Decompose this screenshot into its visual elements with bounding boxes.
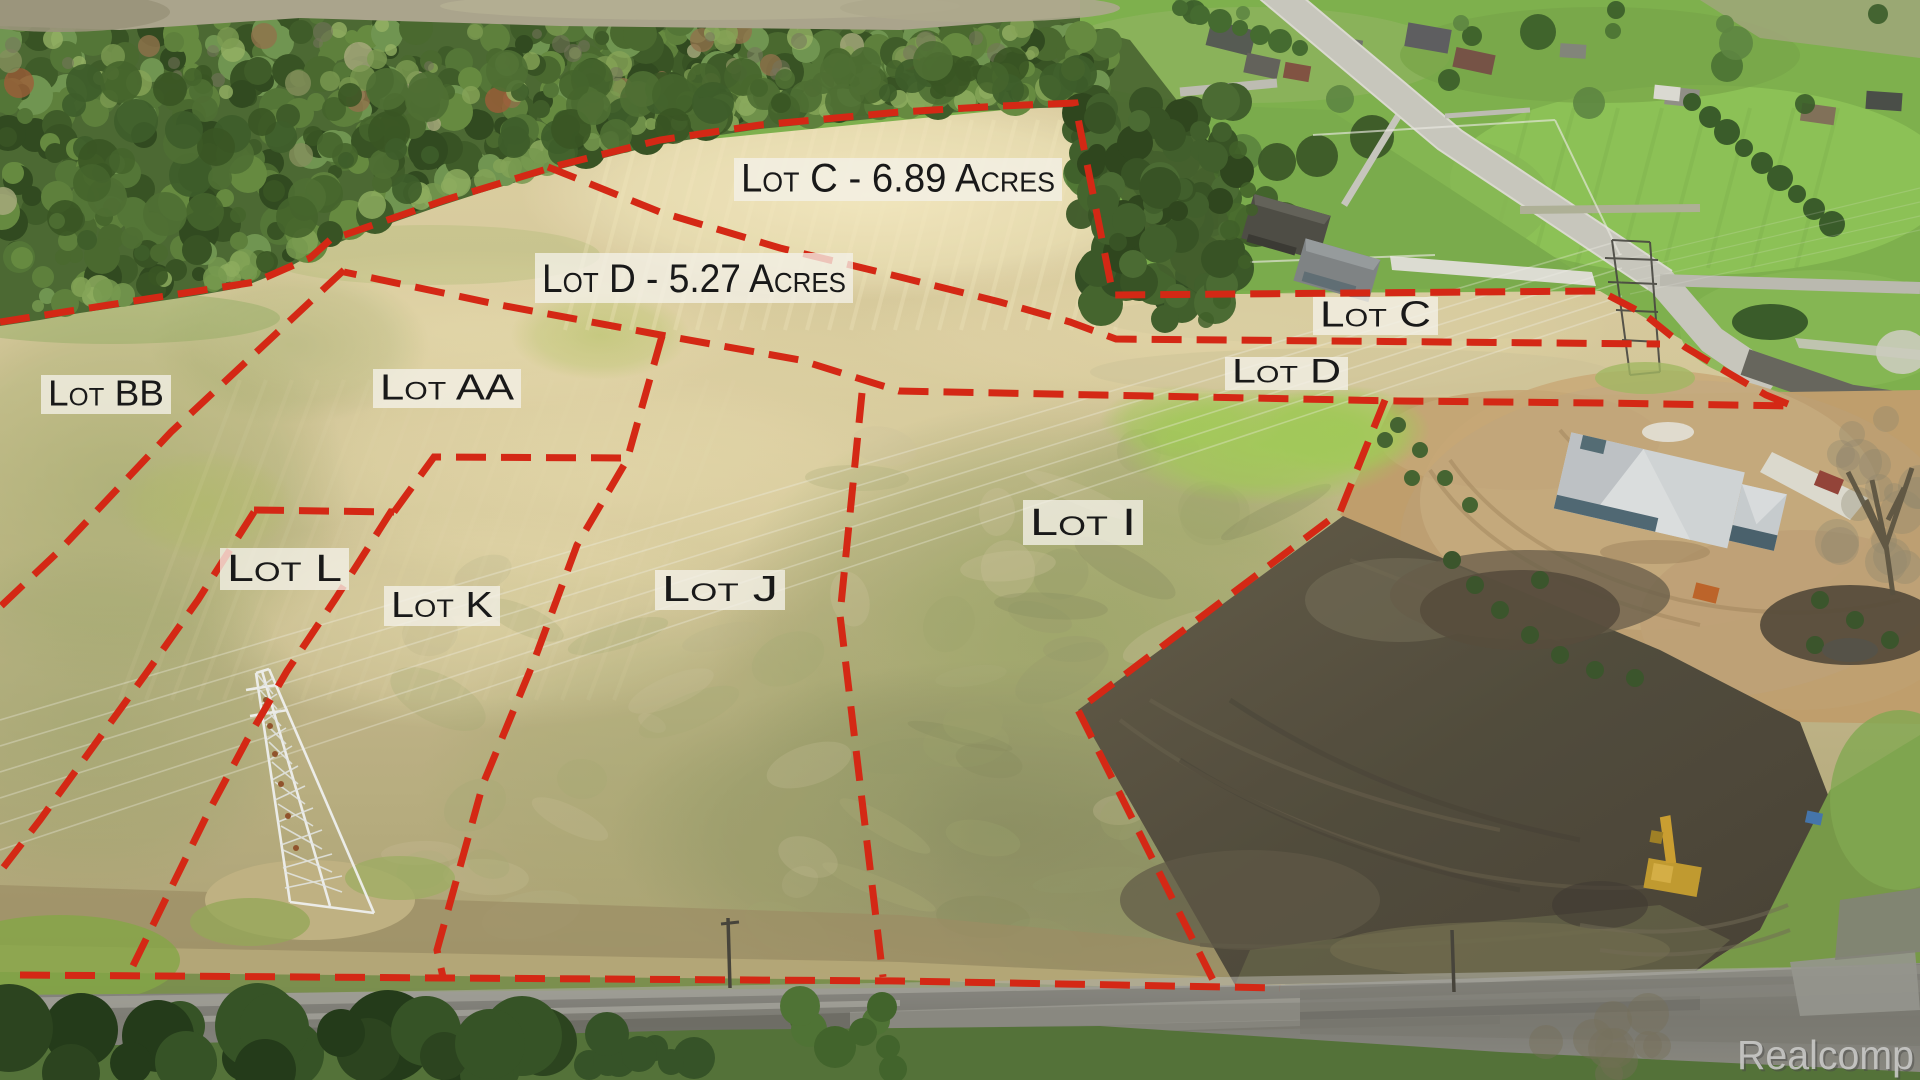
- svg-text:Lot C - 6.89 Acres: Lot C - 6.89 Acres: [741, 157, 1055, 201]
- svg-text:Lot C: Lot C: [1320, 294, 1431, 335]
- svg-text:Realcomp: Realcomp: [1737, 1032, 1914, 1078]
- svg-text:Lot J: Lot J: [662, 568, 778, 609]
- svg-text:Lot BB: Lot BB: [48, 372, 164, 413]
- svg-text:Lot I: Lot I: [1030, 502, 1136, 544]
- svg-text:Lot L: Lot L: [227, 548, 342, 590]
- svg-text:Lot K: Lot K: [391, 584, 493, 625]
- svg-text:Lot D: Lot D: [1232, 353, 1341, 391]
- svg-text:Lot D - 5.27 Acres: Lot D - 5.27 Acres: [542, 257, 846, 301]
- svg-text:Lot AA: Lot AA: [380, 366, 514, 407]
